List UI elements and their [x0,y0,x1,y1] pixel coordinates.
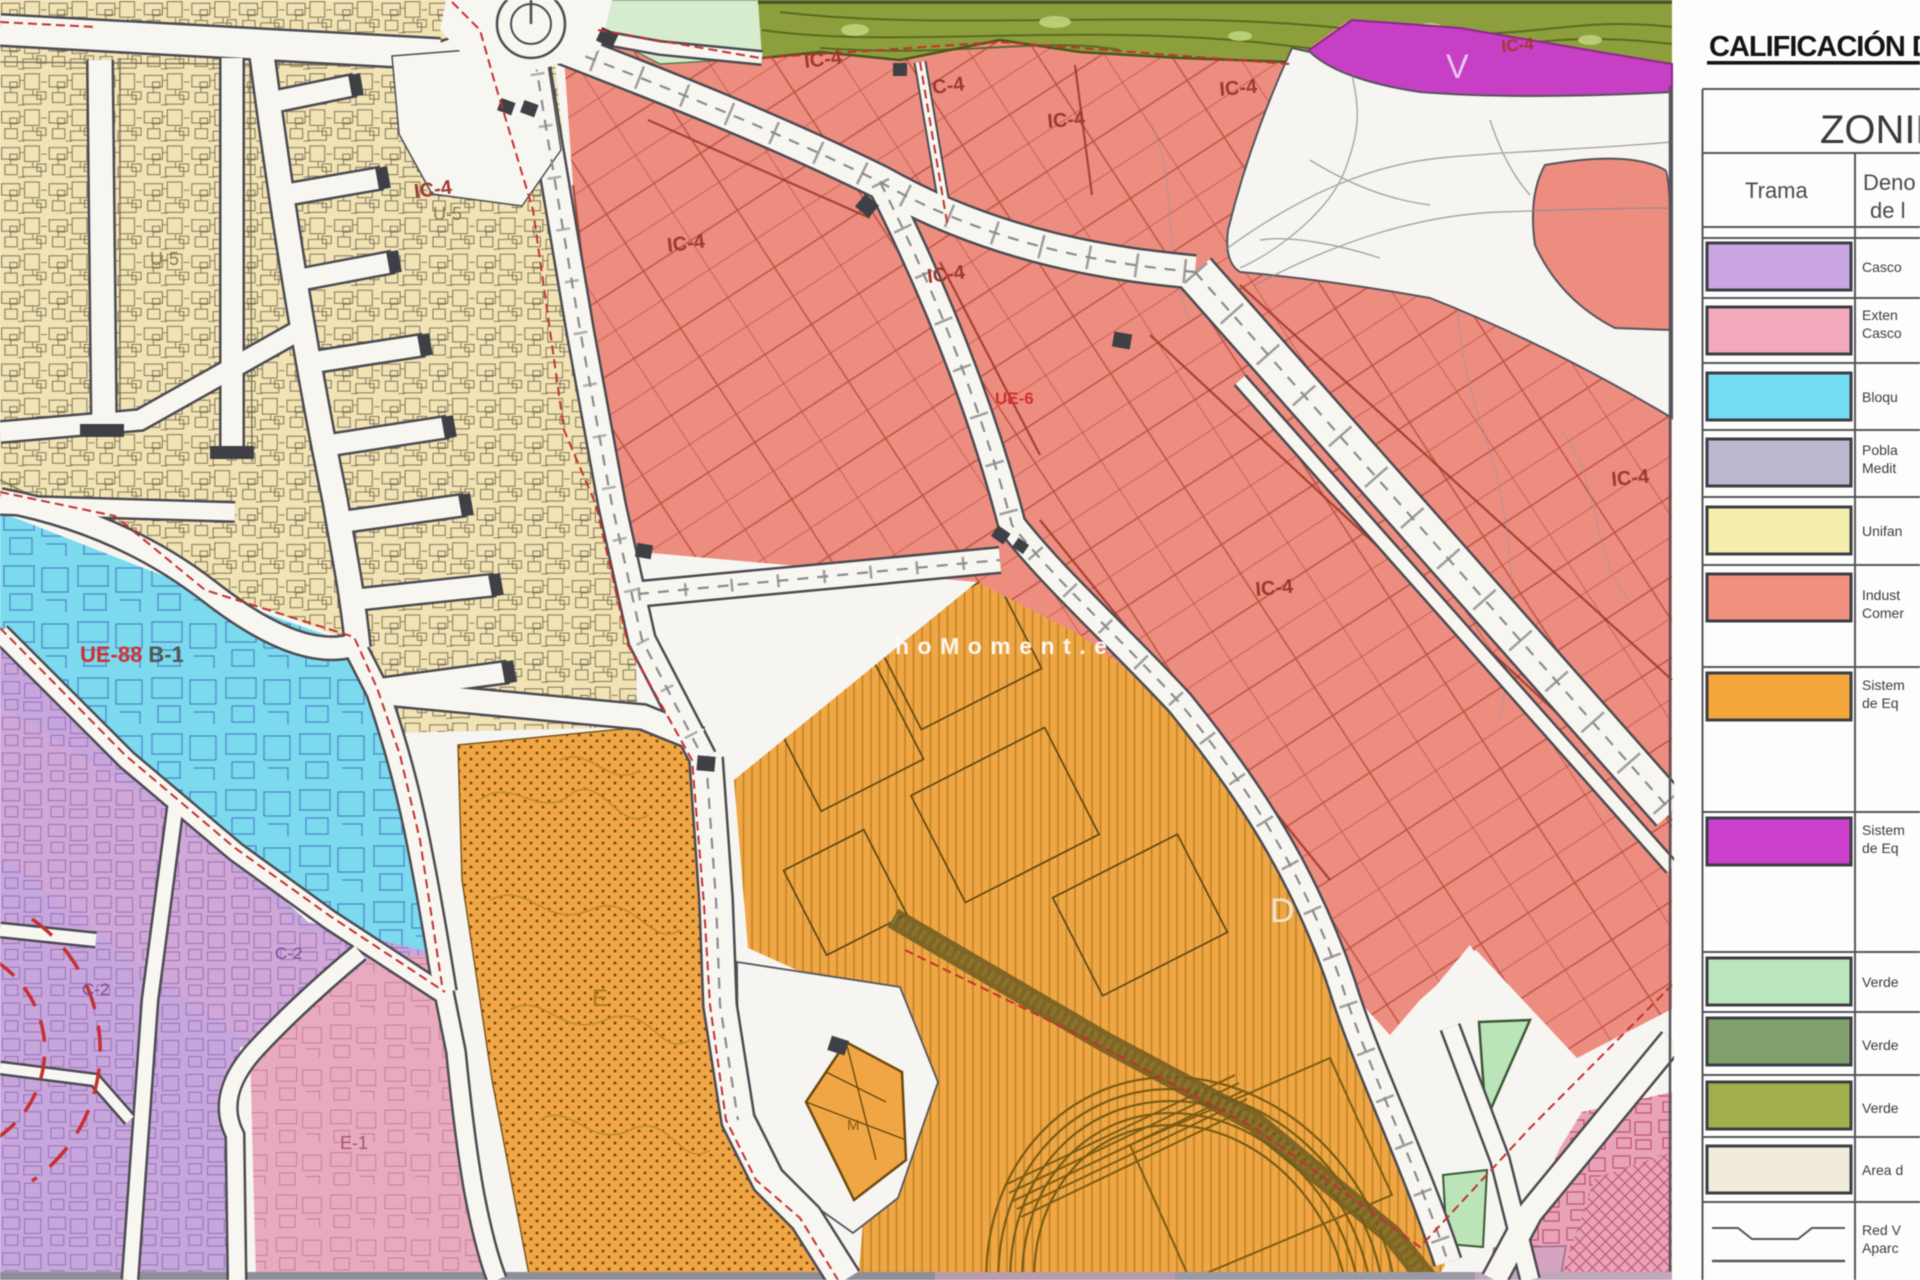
svg-text:de Eq: de Eq [1862,695,1899,711]
svg-text:de Eq: de Eq [1862,840,1899,856]
svg-text:Unifan: Unifan [1862,523,1902,539]
svg-text:IC-4: IC-4 [1611,466,1651,491]
svg-text:Area d: Area d [1862,1162,1903,1178]
svg-text:hoMoment.e: hoMoment.e [895,633,1115,659]
svg-text:Trama: Trama [1745,178,1809,203]
svg-text:Verde: Verde [1862,974,1899,990]
svg-text:Verde: Verde [1862,1100,1899,1116]
svg-text:Indust: Indust [1862,587,1900,603]
svg-text:Medit: Medit [1862,460,1896,476]
svg-text:IC-4: IC-4 [1219,76,1259,101]
svg-text:E-1: E-1 [340,1133,368,1153]
svg-text:Red V: Red V [1862,1222,1902,1238]
svg-text:Comer: Comer [1862,605,1904,621]
svg-text:Sistem: Sistem [1862,677,1905,693]
svg-text:IC-4: IC-4 [926,261,967,288]
svg-text:V: V [1446,48,1469,86]
svg-text:ZONIF: ZONIF [1820,108,1920,152]
svg-text:Casco: Casco [1862,259,1902,275]
svg-text:de l: de l [1870,198,1905,223]
svg-text:Aparc: Aparc [1862,1240,1899,1256]
svg-text:IC-4: IC-4 [1255,576,1295,601]
svg-text:IC-4: IC-4 [413,176,454,203]
svg-text:Pobla: Pobla [1862,442,1898,458]
svg-text:C-4: C-4 [931,73,967,99]
svg-text:U-5: U-5 [433,204,462,224]
svg-text:Verde: Verde [1862,1037,1899,1053]
svg-text:UE-88B-1: UE-88B-1 [80,642,184,667]
svg-text:Casco: Casco [1862,325,1902,341]
svg-text:D: D [1270,892,1295,930]
svg-text:C-2: C-2 [275,944,302,963]
svg-text:CALIFICACIÓN D: CALIFICACIÓN D [1709,29,1920,63]
svg-text:IC-4: IC-4 [1047,108,1087,133]
svg-text:IC-4: IC-4 [1501,34,1535,56]
svg-text:Exten: Exten [1862,307,1898,323]
svg-text:M: M [847,1117,860,1134]
svg-text:IC-4: IC-4 [666,230,707,257]
svg-text:UE-6: UE-6 [995,389,1034,408]
svg-text:IC-4: IC-4 [803,46,844,73]
svg-text:E: E [592,985,608,1012]
svg-text:U-5: U-5 [150,249,179,269]
svg-text:Sistem: Sistem [1862,822,1905,838]
svg-text:Bloqu: Bloqu [1862,389,1898,405]
svg-text:C-2: C-2 [82,980,109,999]
svg-text:Deno: Deno [1863,170,1916,195]
